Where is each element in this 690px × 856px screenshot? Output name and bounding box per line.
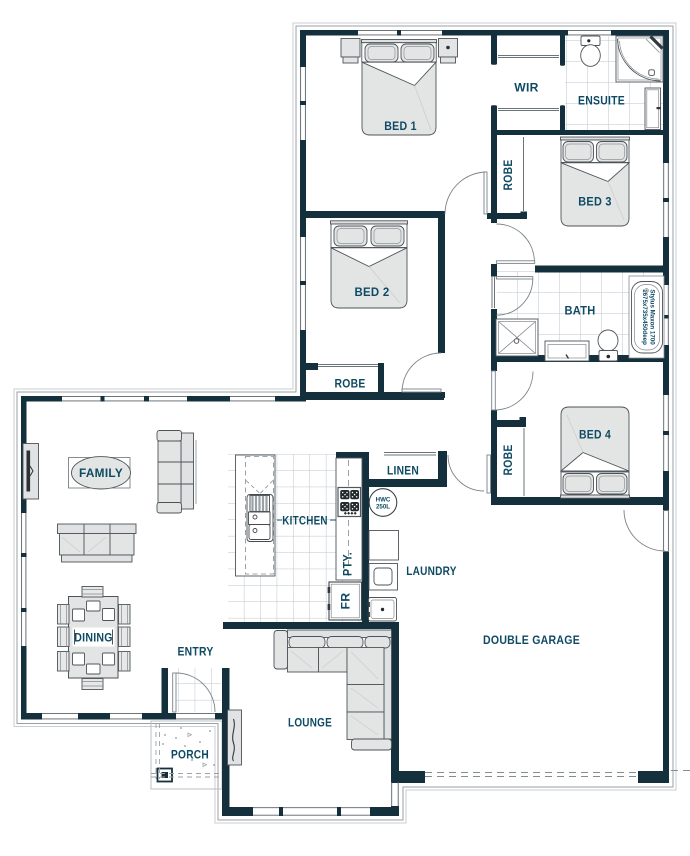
svg-text:BED 1: BED 1 [384, 119, 417, 133]
svg-text:DINING: DINING [74, 630, 113, 644]
svg-text:ROBE: ROBE [501, 160, 515, 191]
svg-text:PORCH: PORCH [171, 747, 209, 761]
svg-text:BED 2: BED 2 [355, 285, 390, 299]
svg-text:FR: FR [339, 592, 353, 609]
svg-text:1675x735x450deep: 1675x735x450deep [641, 289, 648, 345]
svg-text:BATH: BATH [565, 303, 596, 317]
svg-text:BED 3: BED 3 [578, 194, 612, 208]
svg-text:LOUNGE: LOUNGE [288, 715, 332, 729]
svg-text:ROBE: ROBE [501, 445, 515, 476]
svg-text:HWC: HWC [376, 497, 391, 504]
svg-text:ENTRY: ENTRY [178, 644, 214, 658]
svg-text:ENSUITE: ENSUITE [578, 93, 625, 107]
svg-text:Stylus Maxon 1700: Stylus Maxon 1700 [649, 289, 656, 345]
svg-text:BED 4: BED 4 [579, 427, 611, 441]
svg-text:WIR: WIR [514, 80, 539, 94]
svg-text:PTY.: PTY. [341, 552, 355, 576]
svg-text:DOUBLE GARAGE: DOUBLE GARAGE [483, 633, 580, 647]
svg-text:FAMILY: FAMILY [79, 466, 123, 480]
svg-text:ROBE: ROBE [335, 376, 366, 390]
svg-text:LAUNDRY: LAUNDRY [406, 564, 457, 578]
svg-text:LINEN: LINEN [387, 463, 419, 477]
svg-text:KITCHEN: KITCHEN [282, 513, 328, 527]
svg-text:250L: 250L [376, 504, 390, 511]
